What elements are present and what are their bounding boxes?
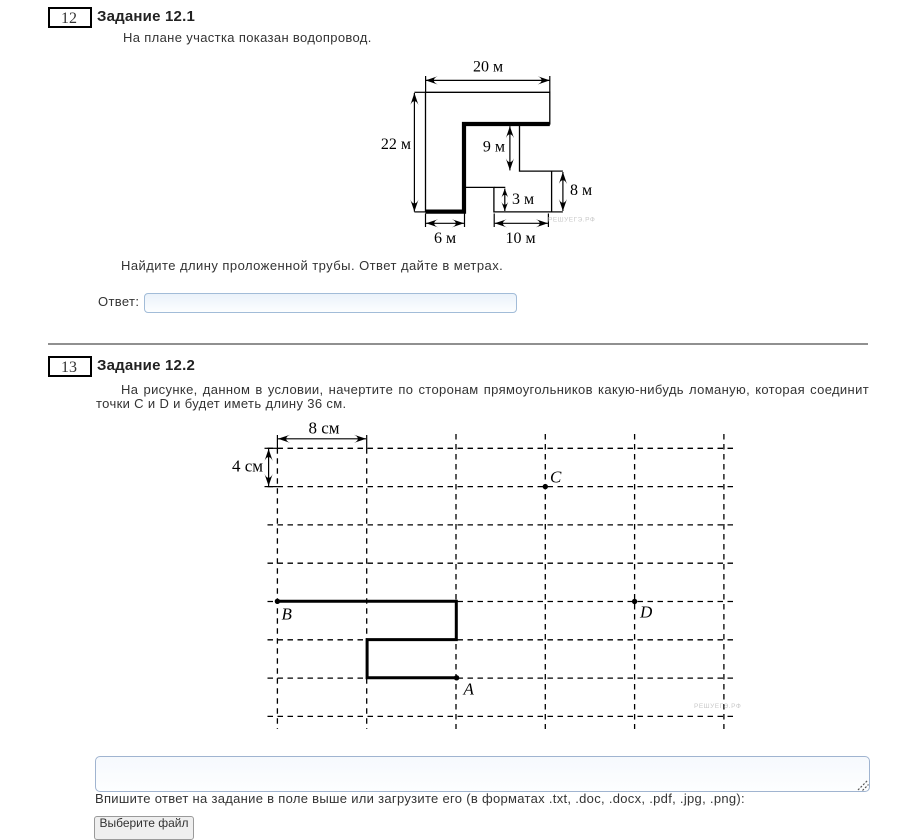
svg-text:РЕШУЕГЭ.РФ: РЕШУЕГЭ.РФ: [694, 703, 741, 710]
svg-text:A: A: [463, 680, 475, 699]
svg-text:D: D: [639, 603, 653, 622]
svg-text:B: B: [282, 605, 293, 624]
svg-text:8 см: 8 см: [308, 419, 339, 438]
svg-text:РЕШУЕГЭ.РФ: РЕШУЕГЭ.РФ: [548, 217, 595, 224]
svg-text:22 м: 22 м: [381, 136, 411, 153]
svg-text:3 м: 3 м: [512, 191, 534, 208]
svg-text:6 м: 6 м: [434, 230, 456, 247]
svg-text:8 м: 8 м: [570, 182, 592, 199]
svg-text:9 м: 9 м: [483, 138, 505, 155]
svg-text:C: C: [550, 468, 562, 487]
svg-text:10 м: 10 м: [505, 230, 535, 247]
svg-text:20 м: 20 м: [473, 59, 503, 76]
svg-text:4 см: 4 см: [232, 457, 263, 476]
